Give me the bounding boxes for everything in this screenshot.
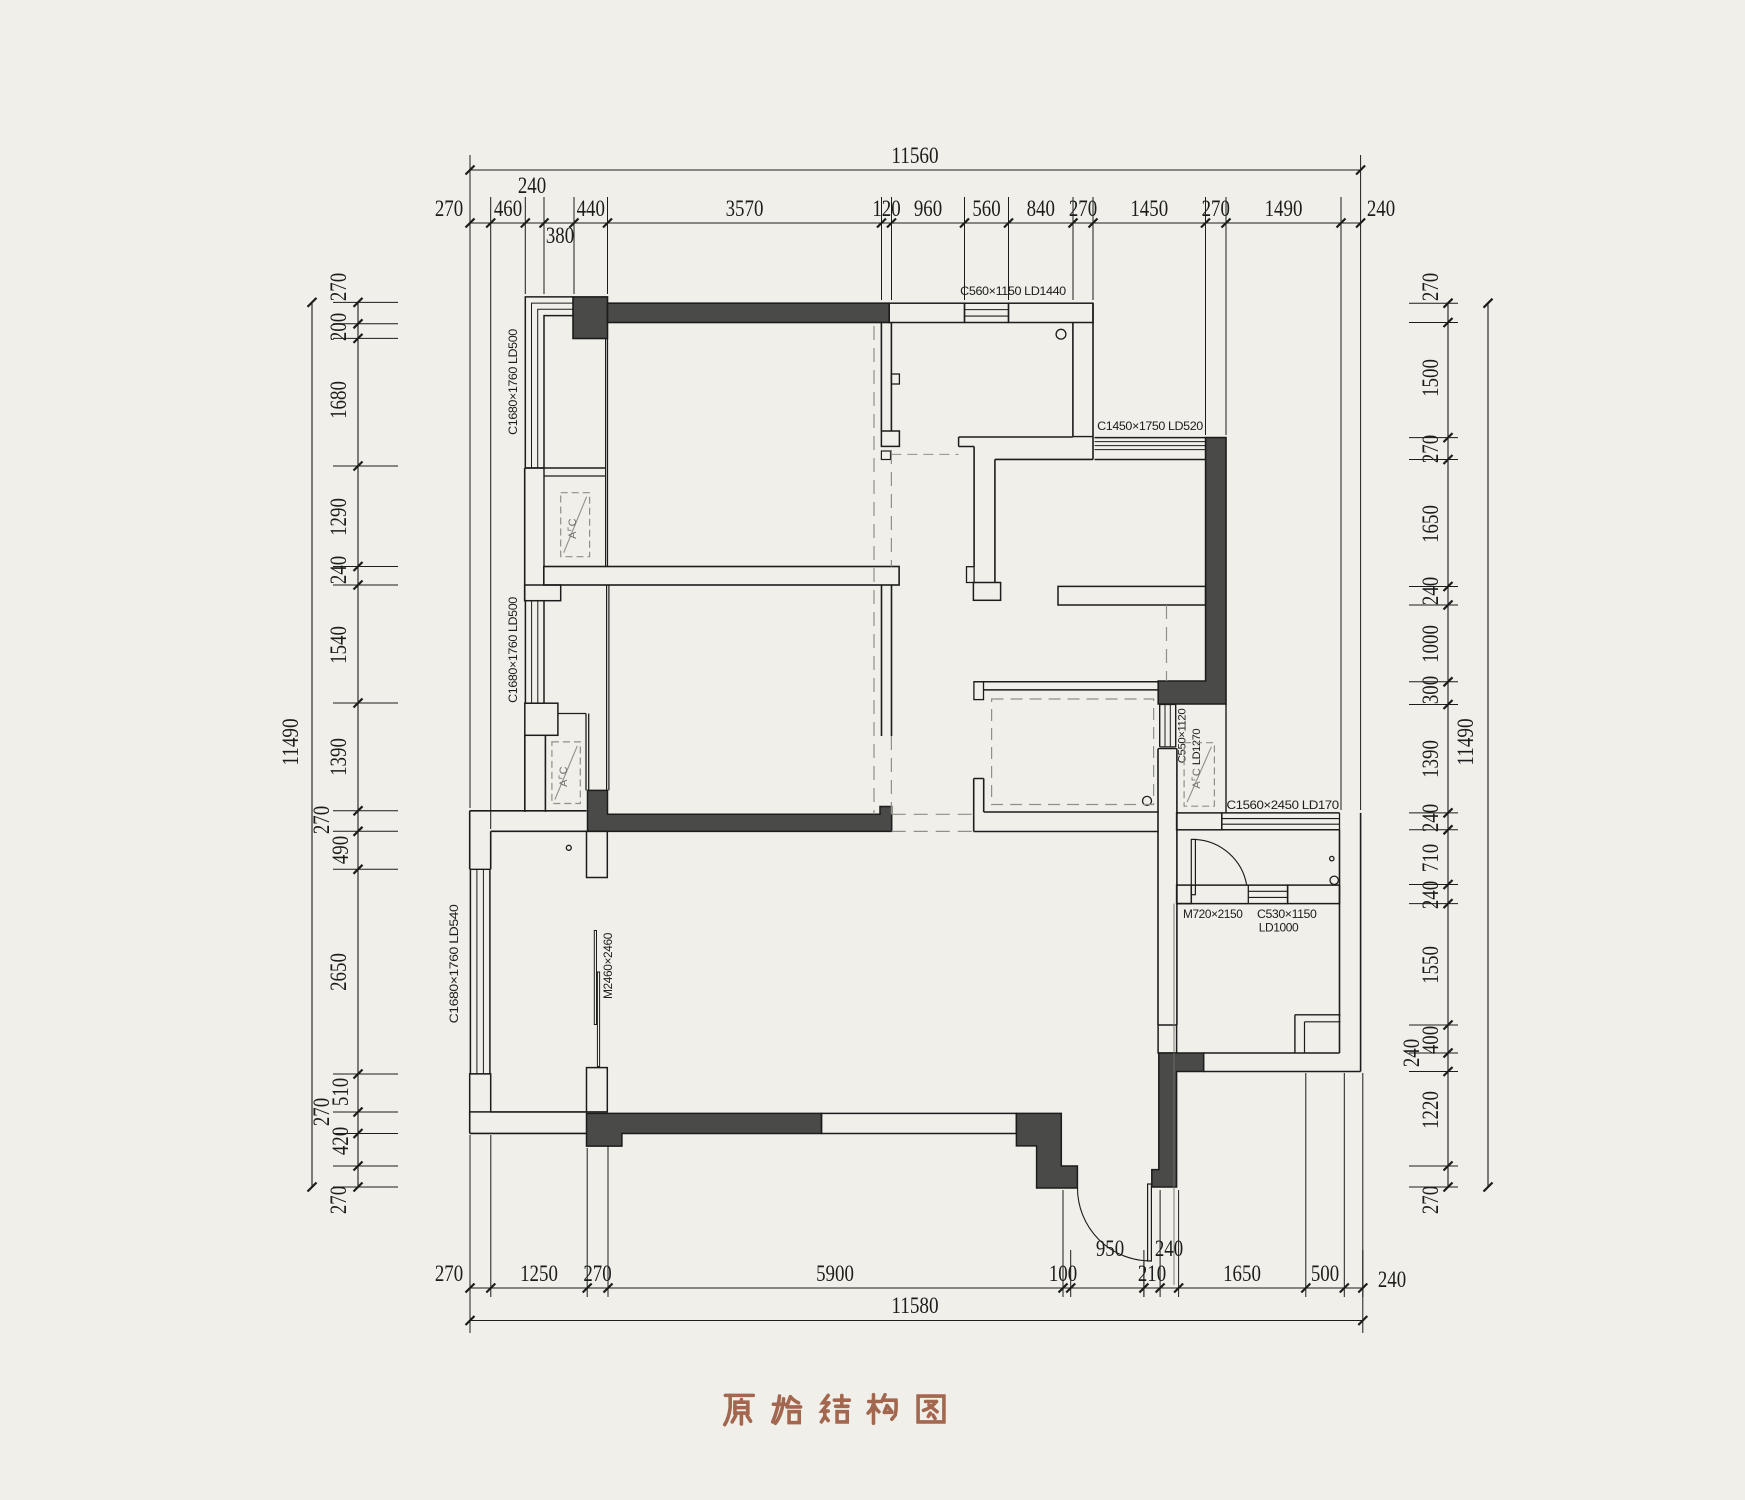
- svg-text:270: 270: [326, 273, 351, 301]
- svg-text:100: 100: [1049, 1261, 1077, 1286]
- svg-text:240: 240: [326, 556, 351, 584]
- svg-text:440: 440: [577, 196, 605, 221]
- svg-text:270: 270: [1202, 196, 1230, 221]
- svg-text:1390: 1390: [1418, 740, 1443, 778]
- svg-text:240: 240: [1378, 1267, 1406, 1292]
- svg-text:C1680×1760 LD500: C1680×1760 LD500: [506, 328, 520, 434]
- svg-text:11490: 11490: [278, 718, 303, 765]
- svg-text:120: 120: [872, 196, 900, 221]
- svg-text:M720×2150: M720×2150: [1183, 907, 1243, 921]
- svg-text:1290: 1290: [326, 498, 351, 536]
- svg-text:500: 500: [1311, 1261, 1339, 1286]
- svg-text:270: 270: [309, 806, 334, 834]
- svg-text:11560: 11560: [891, 143, 938, 168]
- svg-text:960: 960: [914, 196, 942, 221]
- svg-text:1680: 1680: [326, 381, 351, 419]
- svg-text:270: 270: [326, 1186, 351, 1214]
- svg-text:2650: 2650: [326, 953, 351, 991]
- svg-text:270: 270: [1418, 273, 1443, 301]
- svg-text:M2460×2460: M2460×2460: [601, 932, 615, 999]
- svg-text:1650: 1650: [1223, 1261, 1261, 1286]
- svg-text:240: 240: [518, 173, 546, 198]
- svg-text:C1560×2450 LD170: C1560×2450 LD170: [1227, 798, 1340, 812]
- svg-text:LD1270: LD1270: [1191, 729, 1203, 766]
- svg-text:270: 270: [435, 196, 463, 221]
- svg-text:5900: 5900: [816, 1261, 854, 1286]
- svg-text:1650: 1650: [1418, 505, 1443, 543]
- svg-text:1490: 1490: [1265, 196, 1303, 221]
- svg-text:420: 420: [328, 1127, 353, 1155]
- svg-text:1450: 1450: [1130, 196, 1168, 221]
- svg-text:1550: 1550: [1418, 946, 1443, 984]
- svg-text:1500: 1500: [1418, 359, 1443, 397]
- svg-text:840: 840: [1027, 196, 1055, 221]
- svg-text:C550×1120: C550×1120: [1177, 708, 1189, 763]
- svg-text:240: 240: [1155, 1236, 1183, 1261]
- svg-text:LD1000: LD1000: [1259, 921, 1299, 935]
- svg-text:710: 710: [1418, 844, 1443, 872]
- svg-text:270: 270: [435, 1261, 463, 1286]
- svg-text:A⌜C: A⌜C: [567, 518, 579, 538]
- svg-text:240: 240: [1399, 1039, 1424, 1067]
- svg-text:270: 270: [583, 1261, 611, 1286]
- svg-text:C1680×1760 LD500: C1680×1760 LD500: [506, 596, 520, 702]
- svg-text:C530×1150: C530×1150: [1257, 907, 1317, 921]
- svg-text:C1680×1760 LD540: C1680×1760 LD540: [447, 904, 461, 1024]
- svg-text:240: 240: [1418, 804, 1443, 832]
- svg-text:1390: 1390: [326, 738, 351, 776]
- svg-text:300: 300: [1418, 676, 1443, 704]
- svg-text:1540: 1540: [326, 626, 351, 664]
- svg-text:490: 490: [328, 836, 353, 864]
- svg-text:240: 240: [1418, 577, 1443, 605]
- svg-text:A⌜C: A⌜C: [558, 766, 570, 786]
- svg-text:11580: 11580: [891, 1293, 938, 1318]
- svg-text:240: 240: [1418, 881, 1443, 909]
- svg-text:1000: 1000: [1418, 625, 1443, 663]
- svg-text:A⌜C: A⌜C: [1191, 768, 1203, 788]
- svg-text:1250: 1250: [520, 1261, 558, 1286]
- svg-text:270: 270: [1418, 1186, 1443, 1214]
- svg-text:3570: 3570: [726, 196, 764, 221]
- svg-text:270: 270: [1418, 435, 1443, 463]
- svg-text:460: 460: [494, 196, 522, 221]
- svg-text:11490: 11490: [1453, 718, 1478, 765]
- svg-text:1220: 1220: [1418, 1091, 1443, 1129]
- svg-text:C560×1150 LD1440: C560×1150 LD1440: [960, 284, 1066, 298]
- svg-text:380: 380: [546, 223, 574, 248]
- svg-text:560: 560: [972, 196, 1000, 221]
- svg-text:270: 270: [1069, 196, 1097, 221]
- svg-text:200: 200: [326, 313, 351, 341]
- svg-text:240: 240: [1367, 196, 1395, 221]
- svg-text:C1450×1750 LD520: C1450×1750 LD520: [1097, 419, 1203, 433]
- svg-text:270: 270: [309, 1098, 334, 1126]
- svg-text:210: 210: [1138, 1261, 1166, 1286]
